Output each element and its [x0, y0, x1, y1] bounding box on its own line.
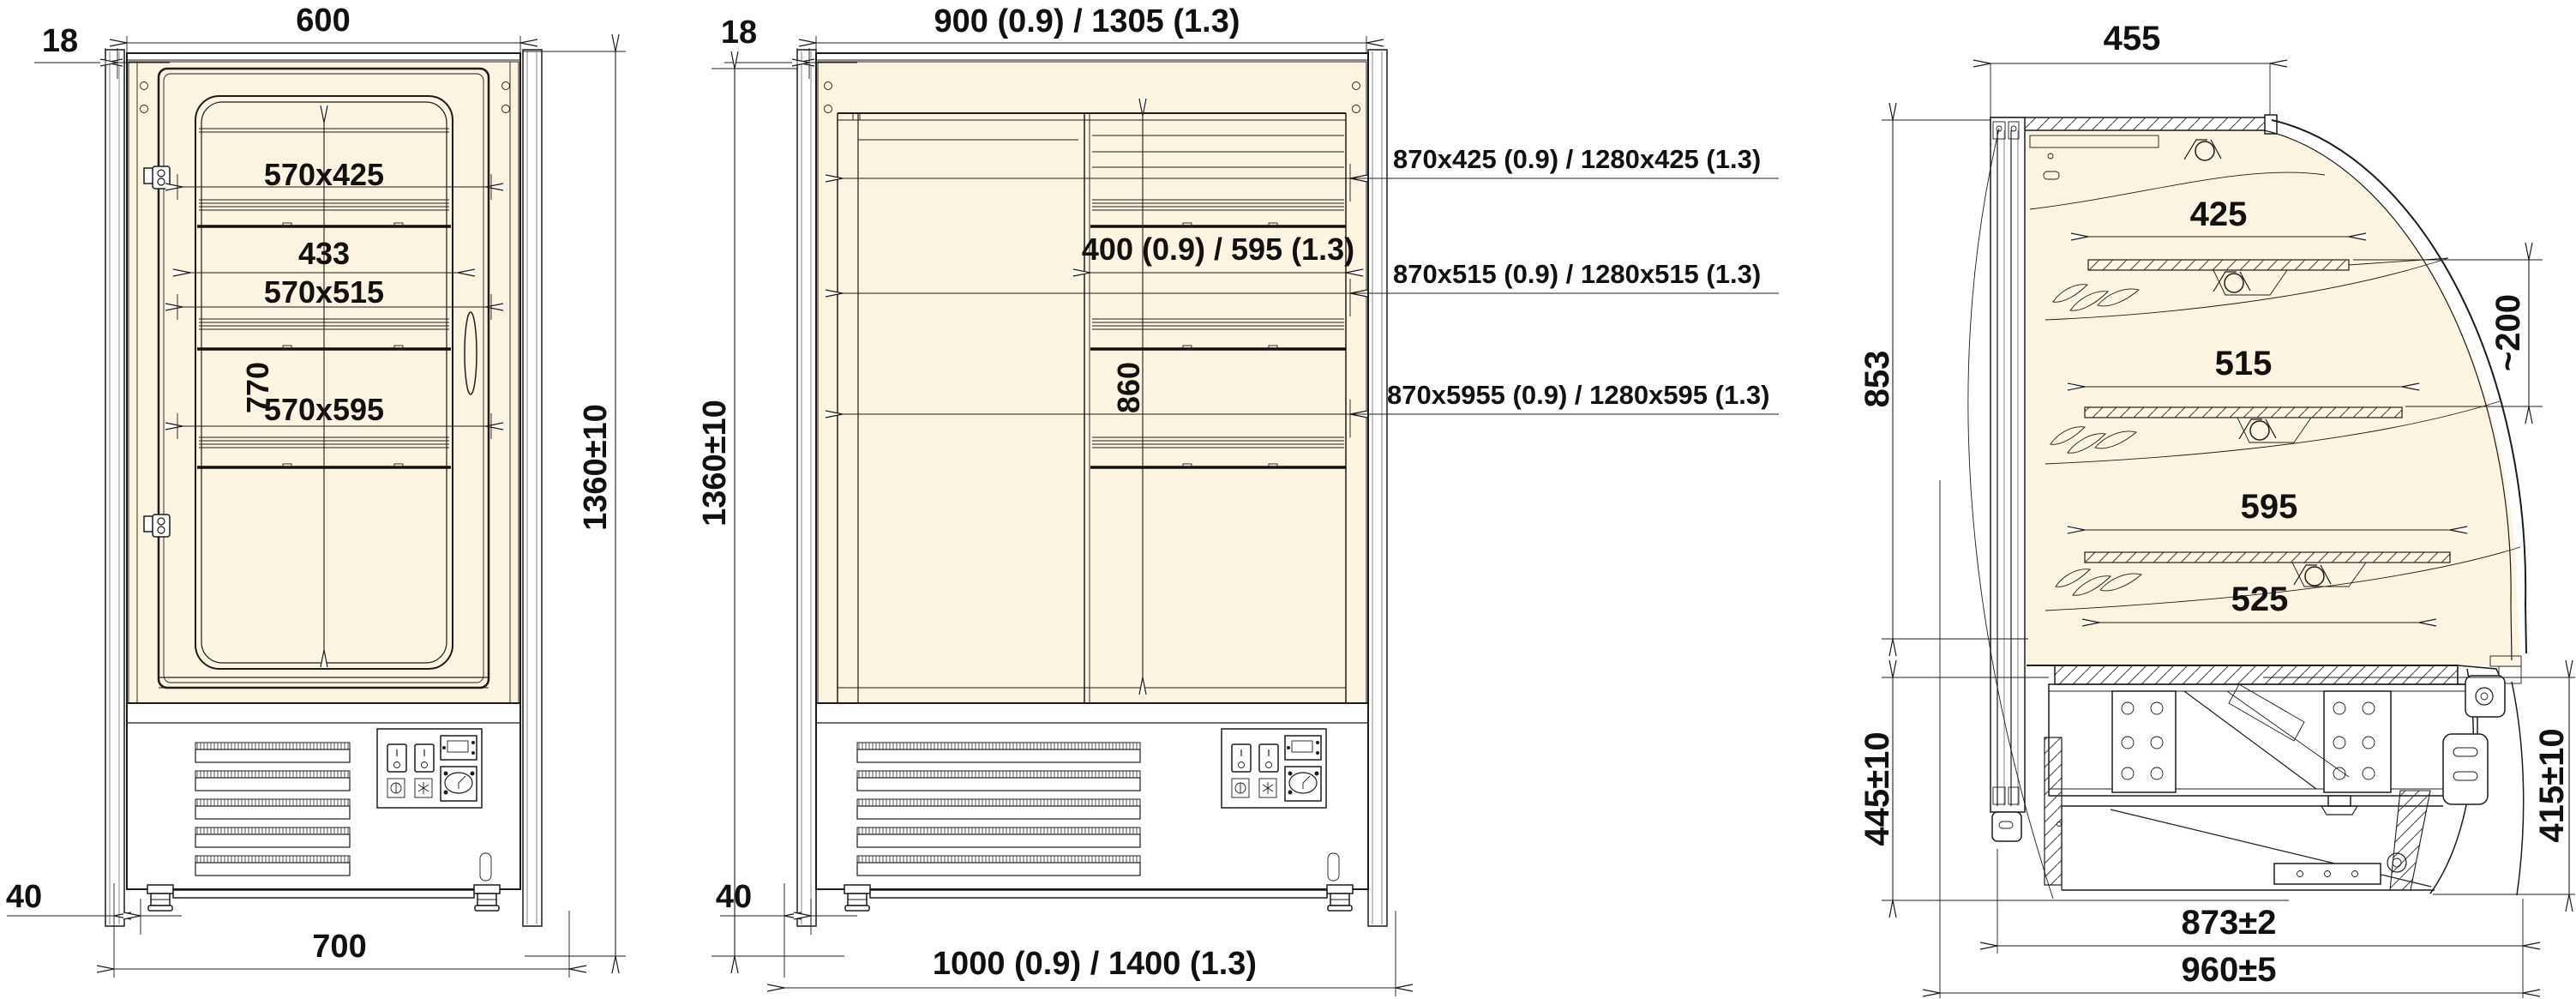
dim-label-570x515: 570x515: [264, 274, 384, 310]
dim-label-1360: 1360±10: [578, 404, 614, 531]
side-panel-left: [797, 50, 816, 926]
display-case-drawing: 18 600 570x425 433 570x515 770 570x595 1…: [0, 0, 2576, 999]
dim-label-853: 853: [1858, 351, 1896, 408]
dim-label-570x425: 570x425: [264, 157, 384, 192]
dim-width-900-1305: 900 (0.9) / 1305 (1.3): [816, 3, 1366, 53]
dim-label-40: 40: [716, 879, 752, 915]
dim-depth-455: 455: [1991, 20, 2270, 117]
dim-width-600: 600: [127, 3, 520, 53]
front-view-narrow: 18 600 570x425 433 570x515 770 570x595 1…: [6, 3, 626, 978]
base-machinery: [2045, 669, 2524, 895]
drain-tube: [480, 853, 491, 881]
dim-label-595: 595: [2241, 488, 2298, 526]
control-panel: [1222, 729, 1326, 808]
dim-width-1000-1400: 1000 (0.9) / 1400 (1.3): [784, 911, 1396, 996]
machinery-compartment: [147, 729, 500, 911]
callout-shelf-mid: 870x515 (0.9) / 1280x515 (1.3): [1393, 259, 1761, 289]
dim-width-700: 700: [114, 911, 569, 978]
control-panel: [377, 729, 482, 808]
side-panel-right: [1368, 50, 1387, 926]
callout-shelf-top: 870x425 (0.9) / 1280x425 (1.3): [1393, 144, 1761, 174]
dim-label-200: ~200: [2489, 294, 2527, 371]
side-panel-left: [105, 50, 124, 926]
callout-shelf-bottom: 870x5955 (0.9) / 1280x595 (1.3): [1387, 380, 1769, 410]
adjustable-foot: [147, 885, 173, 911]
machinery-compartment: [844, 729, 1353, 911]
adjustable-foot: [1327, 885, 1353, 911]
dim-foot-40: 40: [716, 879, 857, 978]
dim-label-873: 873±2: [2182, 904, 2277, 942]
dim-label-700: 700: [312, 929, 366, 965]
technical-drawing-canvas: 18 600 570x425 433 570x515 770 570x595 1…: [0, 0, 2576, 999]
front-view-wide: 18 900 (0.9) / 1305 (1.3) 1360±10 400 (0…: [697, 3, 1779, 996]
dim-label-445: 445±10: [1858, 731, 1896, 846]
dim-label-570x595: 570x595: [264, 392, 384, 427]
side-panel-right: [523, 50, 542, 926]
side-view: 455 425 ~200 853 515 595 525 445±10 415±…: [1858, 20, 2575, 998]
dim-label-18: 18: [721, 15, 757, 51]
adjustable-foot: [474, 885, 500, 911]
dim-label-1360: 1360±10: [697, 400, 733, 527]
dim-label-425: 425: [2190, 196, 2248, 233]
dim-label-18: 18: [42, 23, 78, 59]
dim-label-400-595: 400 (0.9) / 595 (1.3): [1082, 232, 1354, 267]
dim-label-960: 960±5: [2182, 951, 2277, 989]
dim-base-front-415: 415±10: [2263, 677, 2575, 894]
drain-tube: [1328, 853, 1339, 881]
adjustable-foot: [844, 885, 870, 911]
dim-label-900-1305: 900 (0.9) / 1305 (1.3): [934, 3, 1240, 39]
dim-label-415: 415±10: [2533, 728, 2571, 842]
dim-label-1000-1400: 1000 (0.9) / 1400 (1.3): [933, 946, 1257, 982]
dim-label-515: 515: [2215, 345, 2273, 382]
dim-label-600: 600: [296, 3, 350, 39]
display-deck: [2027, 665, 2503, 684]
dim-label-40: 40: [6, 879, 42, 915]
dim-label-455: 455: [2104, 20, 2161, 57]
dim-label-433: 433: [298, 236, 350, 271]
dim-label-860: 860: [1111, 362, 1146, 413]
dim-label-525: 525: [2231, 581, 2289, 618]
